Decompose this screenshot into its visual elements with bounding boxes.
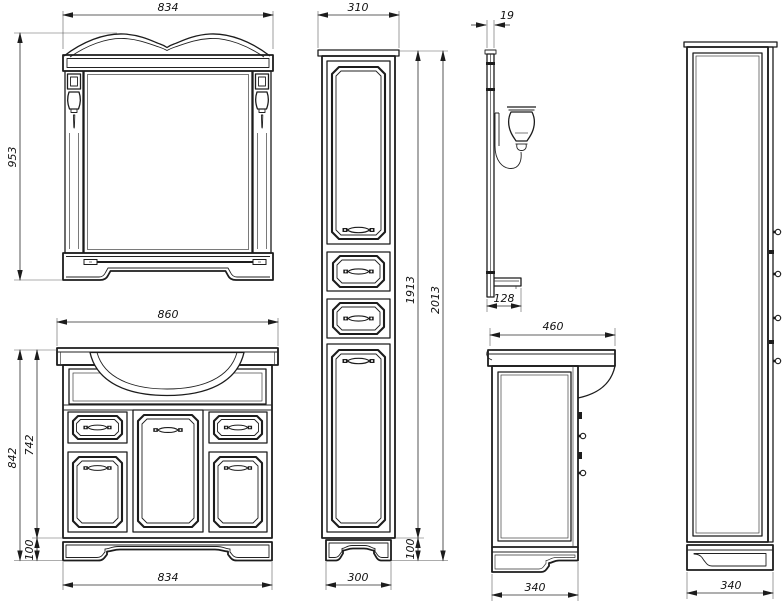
dim-label-vanity-body-height: 742 <box>23 435 36 456</box>
dim-column-plinth-height: 100 <box>404 538 418 561</box>
drawer-handle <box>224 425 252 430</box>
dim-label-vanity-base-width: 834 <box>158 571 179 584</box>
dim-label-column-width: 310 <box>348 1 369 14</box>
dim-label-vanity-height: 842 <box>6 448 19 469</box>
dim-label-column-plinth-height: 100 <box>404 539 417 560</box>
drawer-handle <box>83 425 111 430</box>
dim-label-vanity-plinth-height: 100 <box>23 540 36 561</box>
dim-label-mirror-shelf-depth: 128 <box>494 292 515 305</box>
door-handle <box>83 466 111 471</box>
dim-label-column-depth: 340 <box>721 579 742 592</box>
dim-label-mirror-depth: 19 <box>500 9 514 22</box>
door-handle <box>224 466 252 471</box>
drawer-handle <box>343 316 373 321</box>
dim-label-mirror-height: 953 <box>6 147 19 168</box>
dim-label-vanity-width: 860 <box>158 308 179 321</box>
dim-label-column-body-height: 1913 <box>404 276 417 304</box>
vanity-left-drawer <box>68 412 127 443</box>
drawer-handle <box>343 269 373 274</box>
dim-label-mirror-width: 834 <box>158 1 179 14</box>
dim-label-column-base-width: 300 <box>348 571 369 584</box>
technical-drawing-sheet: 834 953 <box>0 0 783 615</box>
door-handle <box>343 358 375 363</box>
dim-label-vanity-depth: 460 <box>543 320 564 333</box>
sheet-background <box>0 0 783 615</box>
dim-label-vanity-base-depth: 340 <box>525 581 546 594</box>
door-handle <box>153 428 182 433</box>
door-handle <box>343 227 375 232</box>
dim-vanity-plinth-height: 100 <box>23 538 37 561</box>
vanity-right-drawer <box>209 412 267 443</box>
dim-label-column-height: 2013 <box>429 286 442 314</box>
